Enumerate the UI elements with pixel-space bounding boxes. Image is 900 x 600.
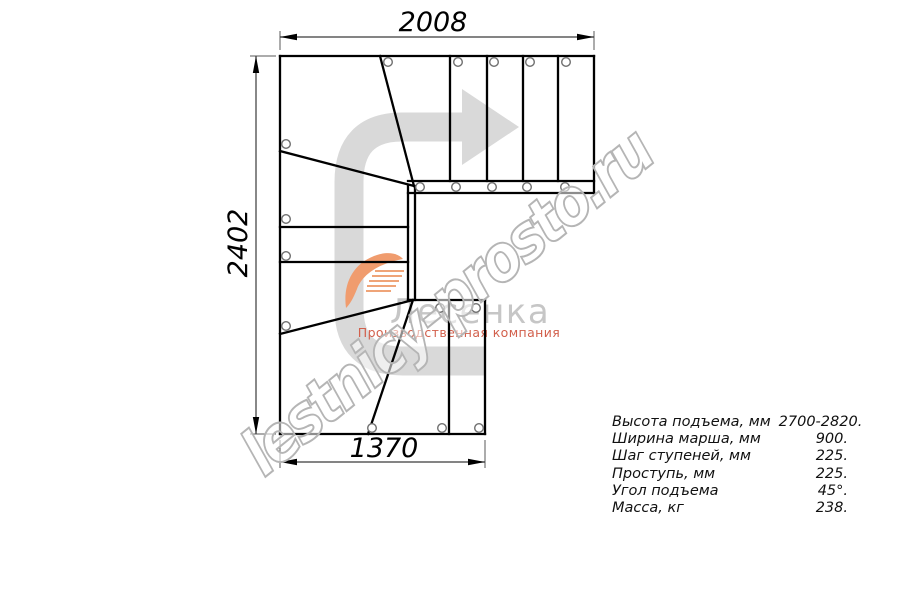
hole-marker — [368, 424, 377, 433]
hole-marker — [416, 183, 425, 192]
spec-row: Проступь, мм 225. — [612, 466, 848, 483]
hole-marker — [452, 183, 461, 192]
spec-row: Масса, кг 238. — [612, 500, 848, 517]
logo-swoosh-hatch-icon — [366, 271, 404, 291]
spec-row: Угол подъема 45°. — [612, 483, 848, 500]
spec-label: Угол подъема — [612, 483, 719, 500]
spec-value: 225. — [808, 448, 848, 465]
hole-marker — [282, 215, 291, 224]
spec-label: Масса, кг — [612, 500, 684, 517]
spec-value: 225. — [808, 466, 848, 483]
direction-arrow-head — [462, 89, 519, 165]
spec-label: Ширина марша, мм — [612, 431, 761, 448]
spec-value: 45°. — [810, 483, 848, 500]
dim-top-label: 2008 — [399, 7, 468, 38]
spec-label: Шаг ступеней, мм — [612, 448, 751, 465]
hole-marker — [282, 140, 291, 149]
hole-marker — [475, 424, 484, 433]
hole-marker — [282, 252, 291, 261]
hole-marker — [384, 58, 393, 67]
dim-bottom-label: 1370 — [350, 433, 419, 464]
spec-value: 238. — [808, 500, 848, 517]
dim-arrow-icon — [280, 34, 297, 40]
dim-arrow-icon — [253, 56, 259, 73]
spec-value: 900. — [808, 431, 848, 448]
dim-left-label: 2402 — [223, 209, 254, 278]
dimension-top: 2008 — [280, 7, 594, 50]
spec-table: Высота подъема, мм 2700-2820. Ширина мар… — [612, 414, 848, 517]
spec-value: 2700-2820. — [771, 414, 863, 431]
hole-marker — [526, 58, 535, 67]
hole-marker — [282, 322, 291, 331]
dim-arrow-icon — [468, 459, 485, 465]
hole-marker — [454, 58, 463, 67]
spec-row: Ширина марша, мм 900. — [612, 431, 848, 448]
spec-label: Высота подъема, мм — [612, 414, 771, 431]
stair-drawing-page: Лесенка Производственная компания — [0, 0, 900, 600]
hole-marker — [488, 183, 497, 192]
hole-marker — [438, 424, 447, 433]
dimension-left: 2402 — [223, 56, 276, 434]
spec-row: Высота подъема, мм 2700-2820. — [612, 414, 848, 431]
spec-row: Шаг ступеней, мм 225. — [612, 448, 848, 465]
spec-label: Проступь, мм — [612, 466, 715, 483]
hole-marker — [562, 58, 571, 67]
hole-marker — [490, 58, 499, 67]
dim-arrow-icon — [577, 34, 594, 40]
